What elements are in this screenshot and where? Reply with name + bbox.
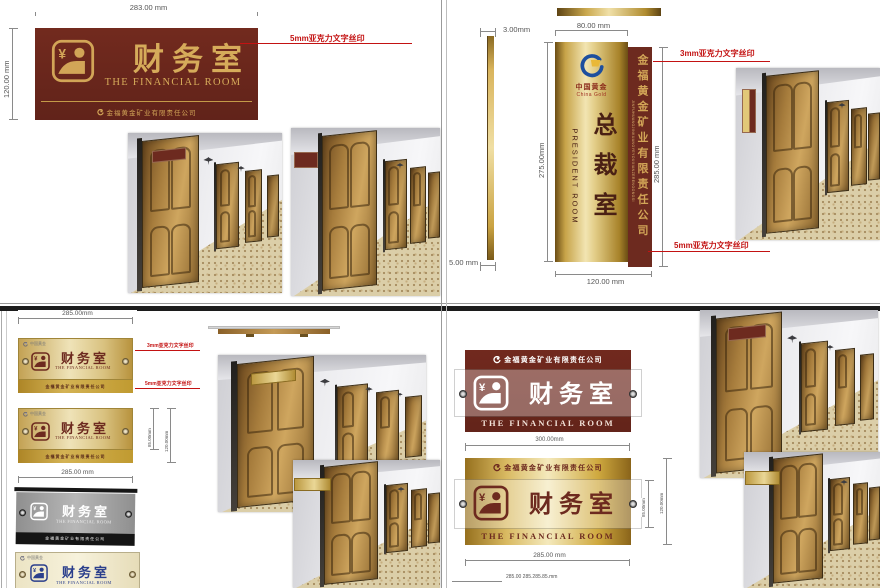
door-panel [793,81,812,150]
wall-sign-tag [743,90,755,131]
door-leaf [773,453,823,583]
company-name: 金福黄金矿业有限责任公司 [504,463,602,473]
door-panel [833,518,843,545]
dimension-line [452,581,502,582]
hallway-render [736,68,880,240]
door-panel [854,113,862,148]
wall-lamp-icon [787,335,797,343]
dimension-label: 285.00 mm [652,145,661,183]
acrylic-overlay: ¥ 财务室 [455,370,641,416]
financial-sign-gold-overlay: 金福黄金矿业有限责任公司 ¥ 财务室 THE FINANCIAL ROOM [465,458,631,545]
dimension-line [18,477,133,478]
hallway-render [291,128,440,296]
dimension-line [666,458,667,545]
financial-room-icon: ¥ [30,502,48,520]
door-panel [331,472,351,524]
dimension-label: 120.00mm [164,431,169,452]
door-panel [798,463,816,518]
sign-title: 财务室 [62,501,110,521]
door [766,70,819,234]
door [428,493,440,544]
door-panel [248,175,256,208]
door-frame [231,361,237,512]
door-panel [838,354,847,388]
china-gold-logo: 中国黄金 [23,341,46,347]
mount-stud [300,334,308,337]
sign-subtitle: THE FINANCIAL ROOM [55,435,111,440]
door-panel [171,223,191,276]
annotation-leader [135,388,200,389]
door [860,353,874,420]
door [868,112,880,180]
sign-subtitle: THE FINANCIAL ROOM [465,418,631,428]
sign-panel: 中国黄金 ¥ 财务室 THE FINANCIAL ROOM [18,338,133,380]
door-leaf [410,166,426,243]
door-panel [773,167,792,223]
company-name-vertical: 金福黄金矿业有限责任公司 [634,54,650,240]
door [851,107,867,186]
vertical-divider [441,0,442,588]
door [716,312,782,473]
door-leaf [835,348,855,426]
door-leaf [385,159,407,250]
sign-subtitle: THE FINANCIAL ROOM [56,580,112,585]
screw-icon [22,358,29,365]
sign-subtitle: THE FINANCIAL ROOM [55,365,111,370]
screw-icon [129,571,136,578]
door [410,166,426,243]
door [411,489,427,548]
door [869,487,880,541]
door-leaf [428,171,440,238]
china-gold-logo-icon [493,356,501,364]
china-gold-logo: 中国黄金 [23,411,46,417]
financial-sign-cream: 中国黄金 ¥ 财务室 THE FINANCIAL ROOM [15,552,140,588]
door-panel [855,488,863,516]
door [245,169,262,243]
door [385,159,407,250]
sign-rule [41,101,252,102]
svg-text:¥: ¥ [34,356,38,362]
acrylic-overlay: ¥ 财务室 [455,480,641,528]
company-name: 金福黄金矿业有限责任公司 [504,355,602,365]
hallway-render [744,452,880,588]
company-name: 金福黄金矿业有限责任公司 [107,107,197,117]
sign-company-line: 金福黄金矿业有限责任公司 [35,107,258,117]
door-leaf [860,353,874,420]
screw-icon [19,571,26,578]
door-leaf [245,169,262,243]
door-leaf [405,395,422,458]
screw-icon [629,390,637,398]
door-panel [830,153,840,187]
china-gold-logo-icon [555,54,628,80]
door-panel [219,169,229,207]
door [428,171,440,238]
door-panel [779,464,797,519]
sign-company-band: 金福黄金矿业有限责任公司 [18,450,133,463]
screw-icon [22,428,29,435]
door [773,453,823,583]
financial-room-icon: ¥ [473,375,509,411]
dimension-line [555,274,652,275]
door [827,100,849,193]
wall-lamp-icon [320,379,330,387]
door-leaf [376,390,399,463]
panel-border [1,311,2,588]
door [853,482,868,545]
annotation-note: 5mm亚克力文字丝印 [145,380,192,387]
financial-room-icon: ¥ [473,485,509,521]
sign-title: 财务室 [62,562,110,581]
logo-text-en: China Gold [555,92,628,98]
dimension-line [662,47,663,267]
dimension-line [555,30,628,31]
door-panel [389,489,399,520]
svg-text:¥: ¥ [479,382,486,394]
dimension-line [12,28,13,120]
financial-room-icon: ¥ [30,564,48,582]
sign-company-band: 金福黄金矿业有限责任公司 [18,380,133,393]
annotation-note: 3mm亚克力文字丝印 [147,342,194,349]
door-panel [773,84,792,153]
annotation-note: 3mm亚克力文字丝印 [680,48,755,59]
dimension-label: 283.00 mm [35,3,262,12]
door-leaf [868,112,880,180]
sign-panel: 中国黄金 ¥ 财务室 THE FINANCIAL ROOM [18,408,133,450]
door-leaf [853,482,868,545]
company-pinyin-vertical: JINFUHUANGJINKUANGYEYOUXIANZERENGONGSI [631,72,635,230]
door-panel [341,391,354,429]
president-room-sign-gold: 中国黄金 China Gold 总裁室 PRESIDENT ROOM [555,42,628,262]
dimension-line [465,445,630,446]
door-panel [351,470,371,522]
dimension-line [480,31,496,32]
door-panel [805,348,816,388]
dimension-label: 120.00 mm [2,60,11,98]
door-panel [350,223,370,278]
door [386,483,408,553]
dimension-line [153,408,154,450]
wall-lamp-icon [203,157,213,165]
door-panel [149,225,169,278]
screw-icon [629,500,637,508]
dimension-label: 5.00 mm [447,258,480,267]
china-gold-logo: 中国黄金 China Gold [555,54,628,98]
door-panel [793,165,812,221]
sign-subtitle: THE FINANCIAL ROOM [465,531,631,541]
china-gold-logo: 中国黄金 [20,555,43,561]
door-leaf [386,483,408,553]
door [801,341,828,433]
sign-panel: ¥ 财务室 THE FINANCIAL ROOM [16,492,136,534]
logo-text-cn: 中国黄金 [30,341,46,347]
door-panel [830,107,840,148]
hallway-render [293,460,440,588]
panel-border [6,311,7,588]
logo-text-cn: 中国黄金 [30,411,46,417]
door-leaf [322,130,377,290]
svg-text:¥: ¥ [58,46,66,61]
door-panel [380,396,390,429]
screw-icon [122,358,129,365]
dimension-line [18,318,133,319]
horizontal-divider [0,303,880,304]
dimension-label: 80.00 mm [555,21,632,30]
dimension-label: 285.00 mm [465,552,634,559]
door-panel [331,533,351,576]
door [830,477,850,551]
door-panel [833,483,843,516]
dimension-line [547,42,548,262]
door-leaf [851,107,867,186]
sign-title: 财务室 [529,484,619,519]
dimension-label: 120.00 mm [555,277,656,286]
door [267,174,279,238]
dimension-line [480,265,496,266]
screw-icon [459,500,467,508]
logo-text-cn: 中国黄金 [27,555,43,561]
sign-subtitle-vertical: PRESIDENT ROOM [571,111,580,243]
sign-subtitle: THE FINANCIAL ROOM [56,519,112,525]
dimension-label: 85.00mm [641,498,646,517]
door-panel [248,210,256,237]
door [322,130,377,290]
door-leaf [324,461,378,584]
financial-room-icon: ¥ [31,352,50,371]
door-leaf [337,383,368,469]
dimension-line [170,408,171,463]
dimension-label: 85.00mm [147,428,152,447]
dimension-line [465,560,630,561]
door [405,395,422,458]
door-panel [805,393,816,426]
dimension-label: 300.00mm [465,437,634,443]
door-panel [388,166,398,206]
door-panel [389,522,399,548]
door-panel [351,531,371,574]
china-gold-logo-icon [20,556,25,561]
sign-title-vertical: 总裁室 [585,112,620,232]
screw-icon [122,428,129,435]
sign-top-view [208,326,340,336]
door-panel [350,141,370,208]
dimension-label: 275.00mm [537,143,546,178]
china-gold-logo-icon [97,109,104,116]
dimension-label: 285.00 mm [18,469,137,476]
annotation-leader [240,43,412,44]
financial-room-icon: ¥ [31,422,50,441]
sign-top-view [557,8,661,16]
backing-layer [218,329,330,334]
vertical-divider [446,0,447,588]
door-leaf [801,341,828,433]
dimension-label: 120.00mm [659,493,664,514]
door-panel [413,493,421,520]
door [324,461,378,584]
door [142,135,199,288]
china-gold-logo-icon [23,412,28,417]
annotation-note: 5mm亚克力文字丝印 [674,240,749,251]
china-gold-logo-icon [23,342,28,347]
dimension-line [648,480,649,528]
door-panel [219,212,229,244]
door-panel [798,527,816,572]
china-gold-logo-icon [493,464,501,472]
hallway-render [128,133,282,293]
sign-company-band: 金福黄金矿业有限责任公司 [16,532,135,546]
signage-design-sheet: 283.00 mm 120.00 mm ¥ 财务室 THE FINANCIAL … [0,0,880,588]
annotation-leader [648,251,770,252]
door-panel [779,529,797,574]
screw-icon [459,390,467,398]
annotation-leader [135,350,200,351]
wall-sign-tag [295,153,317,166]
door [376,390,399,463]
door-panel [388,211,398,244]
dimension-label: 285.00mm [18,310,137,317]
financial-sign-gray: ¥ 财务室 THE FINANCIAL ROOM 金福黄金矿业有限责任公司 [14,487,138,547]
door-panel [330,225,350,280]
screw-icon [19,509,26,516]
door-leaf [267,174,279,238]
door-leaf [766,70,819,234]
svg-text:¥: ¥ [33,568,37,574]
annotation-leader [653,61,770,62]
svg-text:¥: ¥ [33,506,37,512]
financial-sign-maroon-overlay: 金福黄金矿业有限责任公司 ¥ 财务室 THE FINANCIAL ROOM [465,350,631,432]
door-panel [247,445,273,497]
mount-stud [246,334,254,337]
svg-text:¥: ¥ [34,426,38,432]
company-strip-maroon: 金福黄金矿业有限责任公司 JINFUHUANGJINKUANGYEYOUXIAN… [628,47,652,267]
door [337,383,368,469]
door-leaf [830,477,850,551]
sign-company-line: 金福黄金矿业有限责任公司 [465,355,631,365]
door-leaf [428,493,440,544]
screw-icon [125,511,132,518]
financial-room-sign-maroon: ¥ 财务室 THE FINANCIAL ROOM 金福黄金矿业有限责任公司 [35,28,258,120]
door-panel [413,172,421,206]
sign-title: 财务室 [133,34,250,79]
door [216,162,239,249]
dimension-label: 285.00 285.285.85.mm [504,574,559,580]
sign-side-profile [487,36,494,260]
svg-text:¥: ¥ [479,492,486,504]
door [835,348,855,426]
door-panel [330,143,350,210]
door-leaf [869,487,880,541]
dimension-label: 3.00mm [501,25,532,34]
sign-title: 财务室 [529,374,619,409]
door-panel [341,432,354,463]
financial-room-icon: ¥ [51,39,95,83]
door-leaf [216,162,239,249]
door-leaf [827,100,849,193]
sign-subtitle: THE FINANCIAL ROOM [93,77,253,88]
wall-sign-tag [295,479,330,490]
door-leaf [411,489,427,548]
logo-text-cn: 中国黄金 [555,82,628,92]
wall-sign-tag [746,472,779,484]
sign-company-line: 金福黄金矿业有限责任公司 [465,463,631,473]
